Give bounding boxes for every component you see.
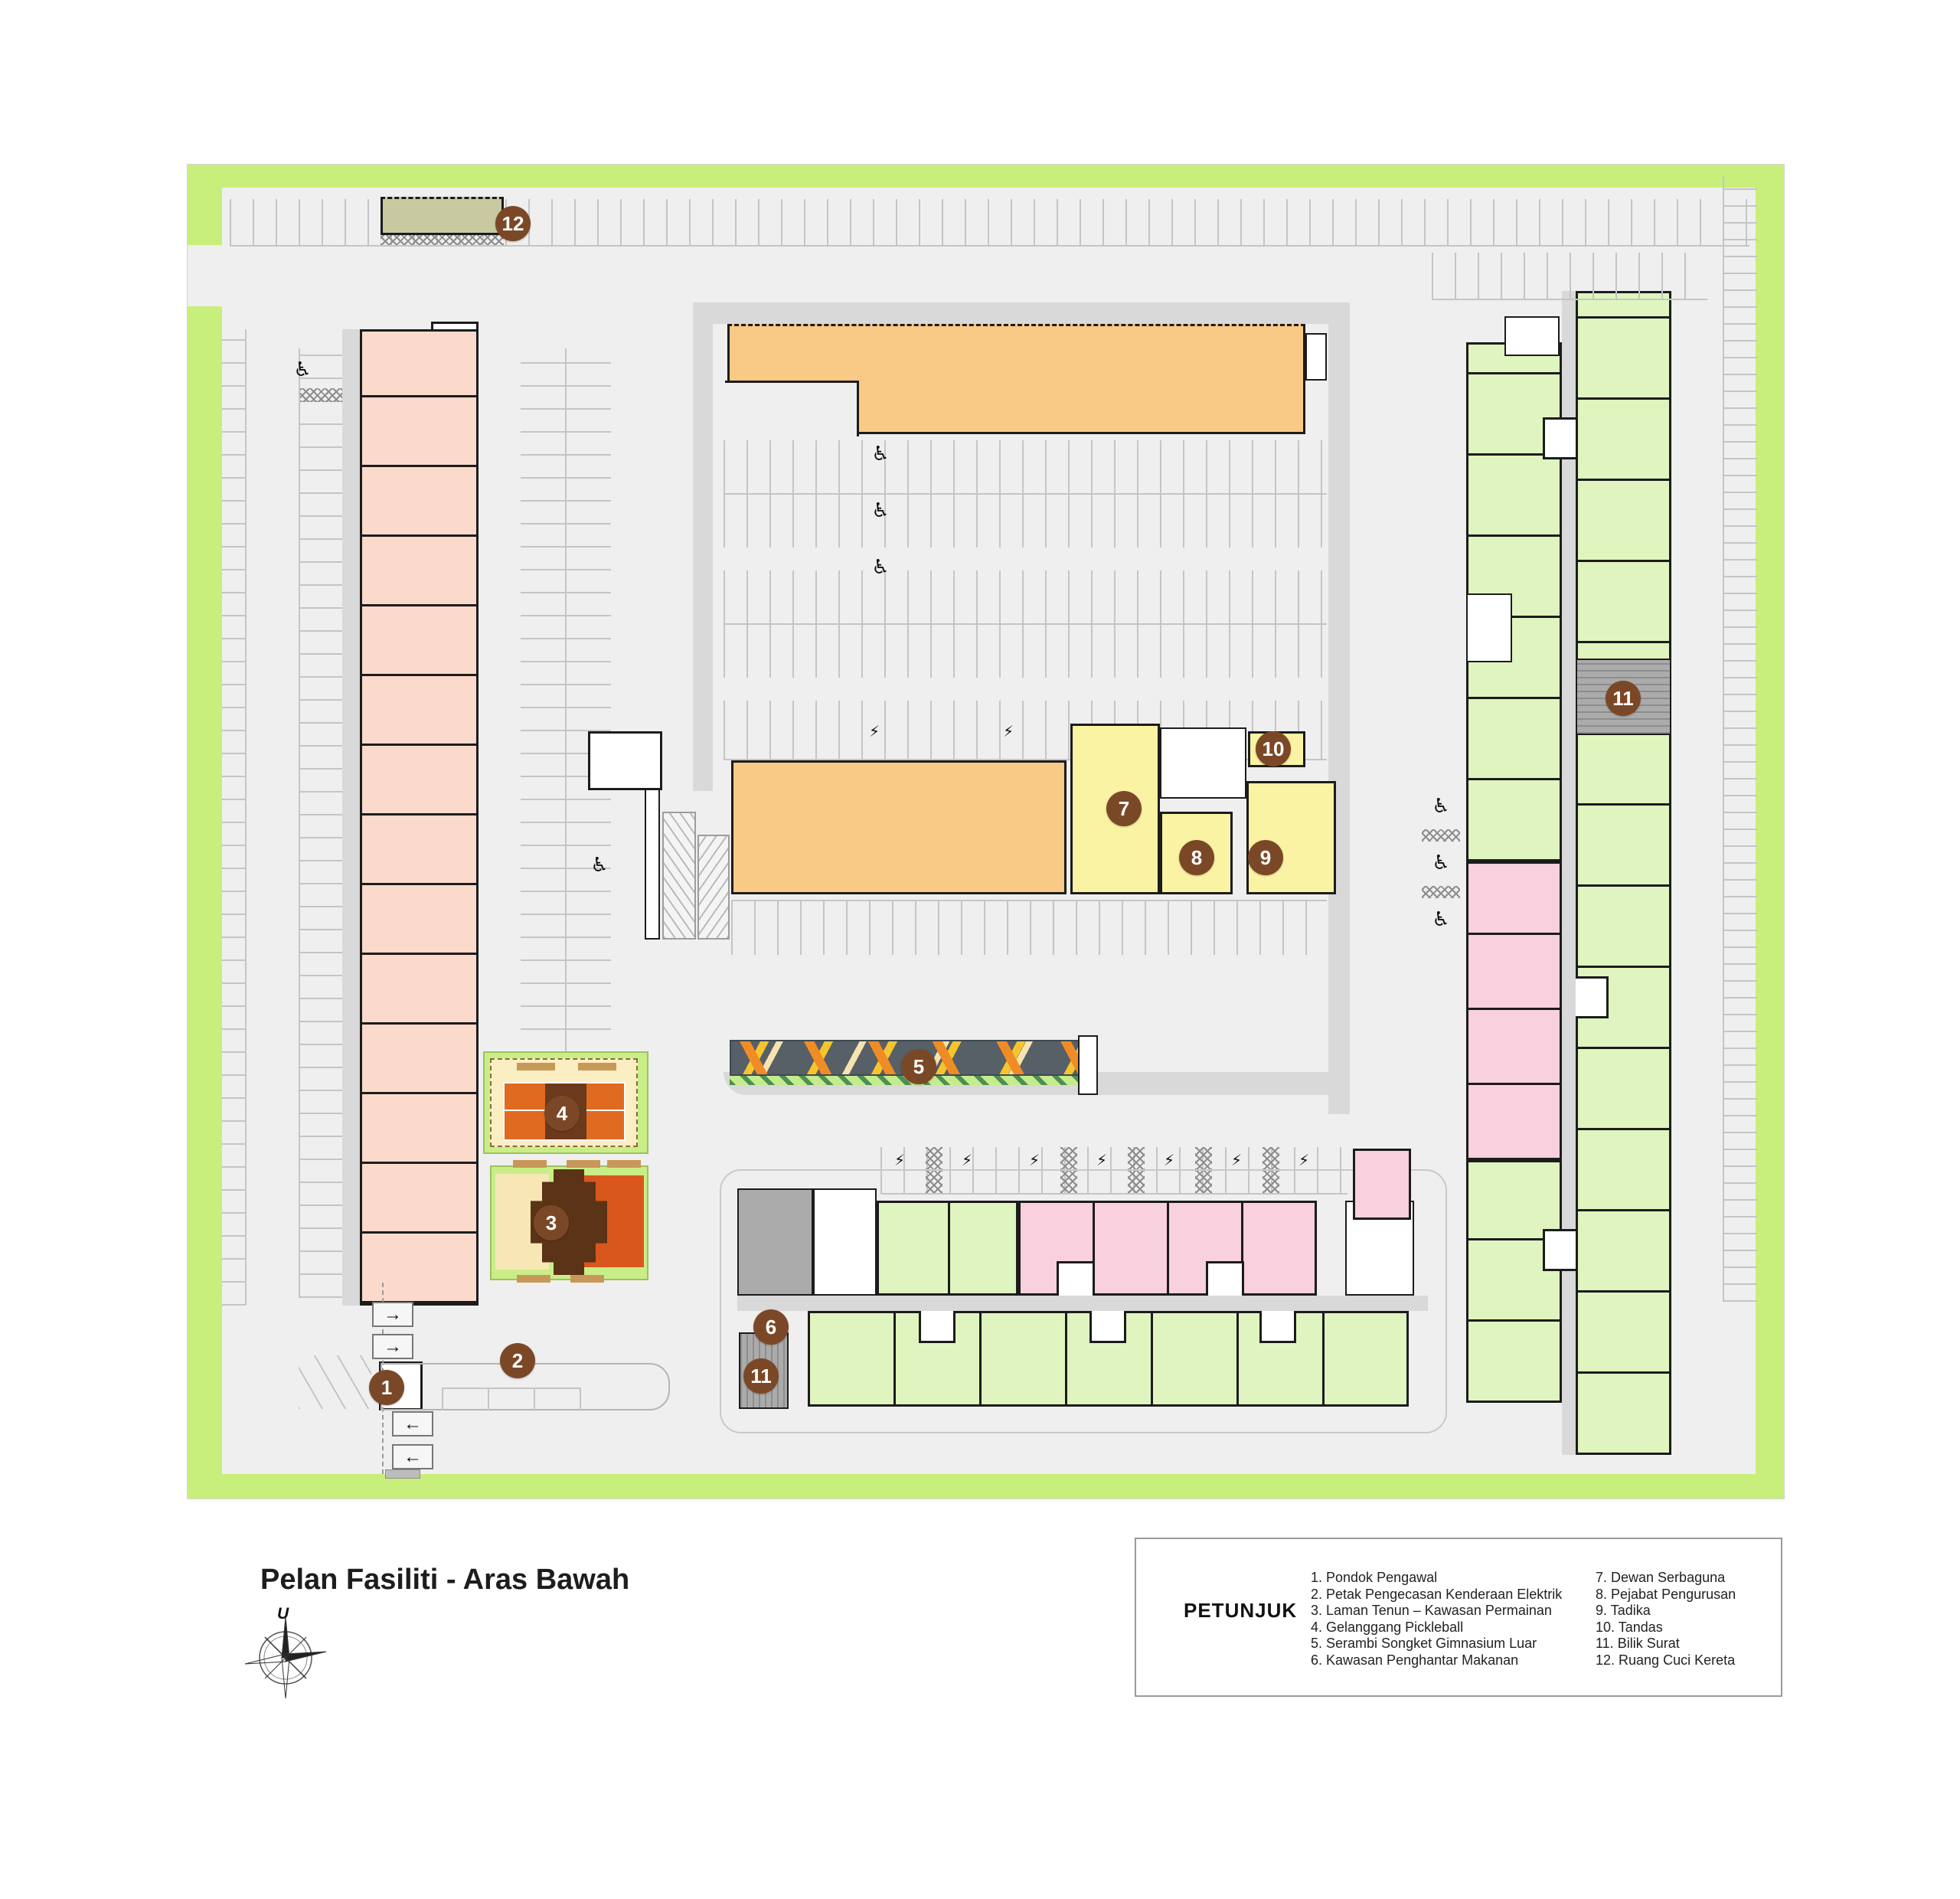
bottom-upper-green-units bbox=[877, 1201, 1018, 1296]
bottom-block-corridor bbox=[737, 1296, 1428, 1311]
car-wash-building bbox=[381, 197, 504, 235]
exit-lane-arrow: ← bbox=[392, 1411, 433, 1437]
parking-band-1 bbox=[724, 440, 1327, 547]
parking-band-2 bbox=[724, 570, 1327, 678]
legend-item: 10. Tandas bbox=[1596, 1620, 1736, 1636]
facility-marker-3: 3 bbox=[534, 1205, 569, 1240]
playground-bench-2 bbox=[567, 1160, 600, 1168]
compass-north-label: U bbox=[277, 1605, 289, 1623]
food-delivery-area bbox=[737, 1188, 813, 1296]
right-cluster-notch-1 bbox=[1543, 417, 1576, 459]
legend-column-1: 1. Pondok Pengawal 2. Petak Pengecasan K… bbox=[1311, 1570, 1562, 1669]
legend-item: 8. Pejabat Pengurusan bbox=[1596, 1587, 1736, 1603]
legend-heading: PETUNJUK bbox=[1184, 1599, 1297, 1623]
entry-lane-arrow: → bbox=[372, 1334, 413, 1359]
ring-road-left bbox=[693, 324, 713, 791]
facility-marker-2: 2 bbox=[500, 1343, 535, 1378]
ev-charger-icon: ⚡ bbox=[1298, 1151, 1309, 1169]
right-cluster-core-mid bbox=[1466, 593, 1512, 662]
ev-charger-icon: ⚡ bbox=[1003, 722, 1014, 740]
accessible-parking-icon: ♿ bbox=[871, 556, 889, 579]
ramp-east bbox=[697, 835, 730, 940]
facility-marker-1: 1 bbox=[369, 1370, 404, 1405]
ev-island-stalls bbox=[442, 1387, 581, 1410]
ev-charger-icon: ⚡ bbox=[869, 722, 880, 740]
page-title: Pelan Fasiliti - Aras Bawah bbox=[260, 1564, 629, 1597]
entry-lane-arrow: → bbox=[372, 1302, 413, 1327]
legend-item: 11. Bilik Surat bbox=[1596, 1636, 1736, 1652]
accessible-parking-icon: ♿ bbox=[871, 443, 889, 466]
legend-item: 1. Pondok Pengawal bbox=[1311, 1570, 1562, 1587]
lower-row-notch-2 bbox=[1089, 1311, 1126, 1343]
central-facility-building bbox=[731, 760, 1067, 894]
pink-tower-stub bbox=[1353, 1149, 1411, 1220]
parking-row-top-right bbox=[1432, 253, 1707, 300]
legend-item: 5. Serambi Songket Gimnasium Luar bbox=[1311, 1636, 1562, 1652]
gym-strip-stair bbox=[1078, 1035, 1098, 1095]
compass bbox=[243, 1616, 328, 1700]
right-cluster-stair-top bbox=[1504, 316, 1560, 356]
right-cluster-notch-2 bbox=[1576, 976, 1609, 1018]
legend-item: 12. Ruang Cuci Kereta bbox=[1596, 1652, 1736, 1669]
facility-marker-8: 8 bbox=[1179, 840, 1214, 875]
right-west-col-pink bbox=[1466, 861, 1562, 1160]
parking-col-left-edge bbox=[222, 329, 247, 1306]
utility-building bbox=[588, 731, 662, 790]
pickleball-bench-top-right bbox=[578, 1063, 616, 1070]
site-plan-canvas: 12345678910111112 ♿♿♿♿♿♿♿♿⚡⚡⚡⚡⚡⚡⚡⚡⚡→→←← … bbox=[0, 0, 1960, 1899]
upper-row-notch-1 bbox=[1057, 1261, 1095, 1296]
car-wash-apron bbox=[381, 235, 504, 245]
ev-charger-icon: ⚡ bbox=[1164, 1151, 1174, 1169]
right-east-col-green bbox=[1576, 291, 1671, 1455]
upper-row-notch-2 bbox=[1206, 1261, 1244, 1296]
green-strip-left-lower bbox=[188, 306, 222, 1474]
ev-charger-icon: ⚡ bbox=[1096, 1151, 1107, 1169]
facility-marker-12: 12 bbox=[495, 206, 531, 241]
stair-bay-north-building bbox=[1305, 333, 1327, 381]
legend-box: PETUNJUK 1. Pondok Pengawal 2. Petak Pen… bbox=[1135, 1538, 1782, 1697]
ring-road-right bbox=[1328, 302, 1350, 1114]
bottom-block-core-west bbox=[813, 1188, 877, 1296]
accessible-parking-icon: ♿ bbox=[590, 854, 608, 877]
facility-marker-4: 4 bbox=[544, 1096, 580, 1131]
green-strip-right bbox=[1756, 165, 1784, 1499]
facility-building-north-notch bbox=[725, 381, 859, 436]
exit-lane-arrow: ← bbox=[392, 1444, 433, 1469]
accessible-parking-icon: ♿ bbox=[1432, 908, 1449, 931]
green-strip-top bbox=[188, 165, 1784, 188]
playground-bench-1 bbox=[513, 1160, 547, 1168]
accessible-hatch-right-2 bbox=[1422, 886, 1460, 898]
legend-item: 3. Laman Tenun – Kawasan Permainan bbox=[1311, 1603, 1562, 1620]
accessible-parking-icon: ♿ bbox=[1432, 851, 1449, 874]
accessible-stall-hatch-left bbox=[300, 388, 342, 402]
ev-charger-icon: ⚡ bbox=[894, 1151, 905, 1169]
central-core bbox=[1160, 727, 1246, 799]
facility-marker-9: 9 bbox=[1248, 840, 1283, 875]
lower-row-notch-1 bbox=[919, 1311, 955, 1343]
walkway-left-building bbox=[342, 329, 360, 1306]
green-strip-left-upper bbox=[188, 188, 222, 245]
facility-marker-6: 6 bbox=[753, 1309, 789, 1345]
legend-item: 9. Tadika bbox=[1596, 1603, 1736, 1620]
utility-corridor bbox=[645, 789, 660, 940]
facility-marker-5: 5 bbox=[901, 1049, 936, 1084]
legend-item: 7. Dewan Serbaguna bbox=[1596, 1570, 1736, 1587]
ev-charger-icon: ⚡ bbox=[962, 1151, 972, 1169]
ring-road-top bbox=[693, 302, 1350, 324]
ramp-west bbox=[662, 812, 696, 940]
right-west-col-green-bottom bbox=[1466, 1160, 1562, 1403]
parking-row-below-central bbox=[731, 900, 1327, 955]
green-strip-bottom bbox=[188, 1474, 1784, 1499]
parking-col-left-inner bbox=[299, 348, 344, 1298]
legend-item: 6. Kawasan Penghantar Makanan bbox=[1311, 1652, 1562, 1669]
entrance-gate-bar bbox=[385, 1469, 420, 1479]
ev-charger-icon: ⚡ bbox=[1231, 1151, 1242, 1169]
accessible-parking-icon: ♿ bbox=[293, 358, 311, 381]
facility-marker-10: 10 bbox=[1256, 731, 1291, 766]
legend-item: 2. Petak Pengecasan Kenderaan Elektrik bbox=[1311, 1587, 1562, 1603]
facility-marker-11: 11 bbox=[1606, 681, 1641, 716]
visitor-stalls-diagonal bbox=[299, 1355, 371, 1409]
pickleball-bench-top-left bbox=[517, 1063, 555, 1070]
lower-row-notch-3 bbox=[1259, 1311, 1296, 1343]
residential-slab-west bbox=[360, 329, 479, 1306]
accessible-hatch-right-1 bbox=[1422, 829, 1460, 842]
legend-column-2: 7. Dewan Serbaguna 8. Pejabat Pengurusan… bbox=[1596, 1570, 1736, 1669]
accessible-parking-icon: ♿ bbox=[1432, 795, 1449, 818]
right-cluster-notch-3 bbox=[1543, 1229, 1576, 1271]
facility-marker-11: 11 bbox=[743, 1358, 779, 1394]
legend-item: 4. Gelanggang Pickleball bbox=[1311, 1620, 1562, 1636]
playground-bench-5 bbox=[570, 1275, 604, 1283]
playground-bench-3 bbox=[607, 1160, 641, 1168]
plan-area: 12345678910111112 ♿♿♿♿♿♿♿♿⚡⚡⚡⚡⚡⚡⚡⚡⚡→→←← bbox=[188, 165, 1784, 1499]
parking-right-edge bbox=[1723, 176, 1757, 1302]
right-cluster-corridor bbox=[1562, 291, 1576, 1455]
compass-rose-icon bbox=[243, 1616, 328, 1700]
tadika bbox=[1246, 781, 1336, 894]
facility-marker-7: 7 bbox=[1106, 791, 1142, 826]
ev-charger-icon: ⚡ bbox=[1029, 1151, 1040, 1169]
accessible-parking-icon: ♿ bbox=[871, 499, 889, 522]
playground-bench-4 bbox=[517, 1275, 550, 1283]
